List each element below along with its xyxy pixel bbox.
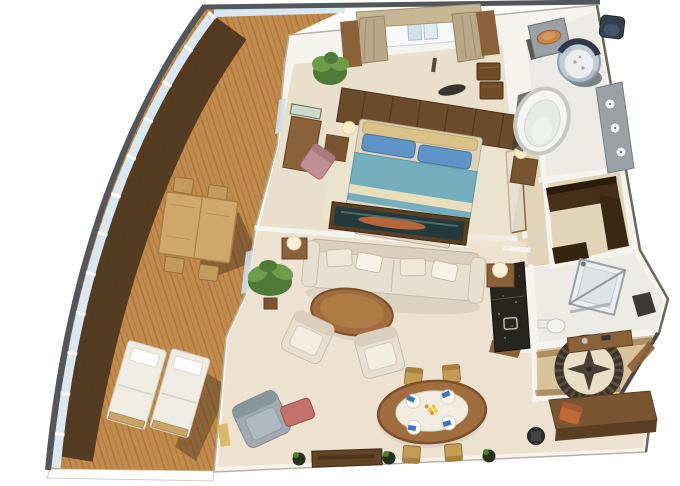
table-lamp [287, 236, 301, 250]
toilet [599, 15, 626, 40]
balcony-chair [164, 256, 185, 273]
wall-foyer-west [534, 350, 535, 400]
floor-plan-stage [0, 0, 680, 486]
balcony-chair [173, 177, 194, 194]
dining-chair [442, 364, 460, 382]
place-setting [441, 389, 456, 404]
place-setting [407, 420, 422, 435]
bedside-lamp [343, 122, 356, 135]
hull-rim-top [204, 2, 600, 7]
balcony-chair [198, 264, 219, 281]
floor-plan-canvas [0, 0, 680, 486]
tv-console [312, 449, 383, 467]
side-table-left [282, 236, 307, 259]
nightstand-right [510, 156, 538, 185]
place-setting [406, 394, 421, 409]
dining-chair [402, 445, 420, 463]
railing-glass-top [214, 9, 345, 13]
deck-bottom-rim [47, 469, 214, 481]
sofa-pillow [400, 258, 425, 275]
place-setting [441, 415, 456, 430]
table-lamp [493, 263, 508, 278]
sofa-pillow [327, 249, 353, 267]
side-table-right [487, 263, 514, 288]
dark-task-chair [528, 428, 545, 445]
dining-chair [444, 443, 462, 461]
